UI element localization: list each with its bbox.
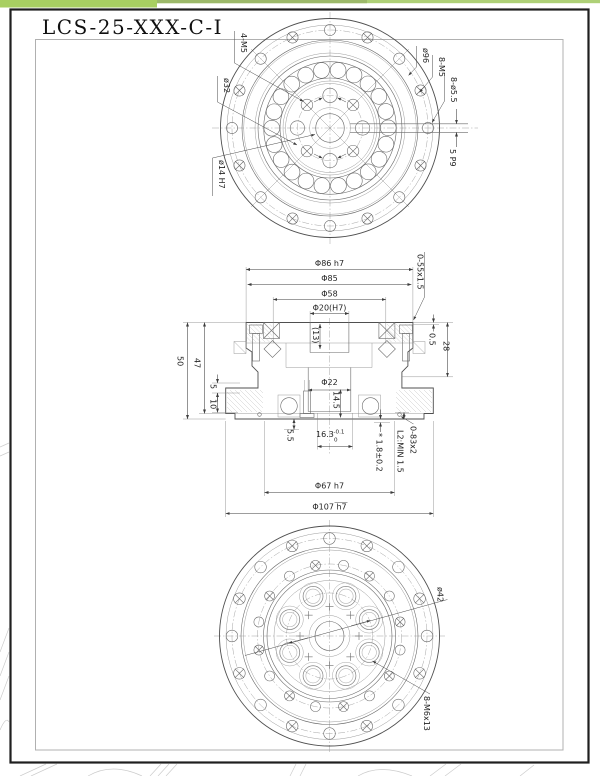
label-dia42: ø42	[436, 587, 445, 602]
dim-h145: 14.5	[332, 391, 341, 409]
dim-dia20: Φ20(H7)	[313, 304, 347, 313]
dim-h28: 28	[442, 341, 451, 351]
label-8-m5: 8-M5	[437, 57, 446, 77]
dim-depth13: (13)	[311, 327, 320, 343]
dim-l2: L2:MIN 1.5	[396, 430, 405, 473]
dim-dia85: Φ85	[321, 274, 337, 283]
dim-dia22: Φ22	[321, 378, 337, 387]
dim-oring-top: 0-55x1.5	[416, 254, 425, 290]
dim-h55: 5.5	[286, 429, 295, 442]
screenshot-root: LCS-25-XXX-C-I 5 P9	[0, 0, 600, 776]
label-8-d55: 8-ø5.5	[449, 77, 458, 103]
dim-h47: 47	[193, 358, 202, 368]
dim-dia107: Φ107 h7	[312, 503, 346, 512]
dim-h5: 5	[209, 384, 218, 389]
dim-gap05: 0.5	[428, 333, 437, 346]
label-8-m6x13: 8-M6x13	[422, 696, 431, 731]
dim-dia67: Φ67 h7	[315, 482, 344, 491]
dim-dia58: Φ58	[321, 290, 337, 299]
drawing-title: LCS-25-XXX-C-I	[42, 15, 223, 39]
dim-dia86: Φ86 h7	[315, 259, 344, 268]
engineering-drawing: LCS-25-XXX-C-I 5 P9	[0, 0, 600, 776]
dim-keyway: 5 P9	[448, 149, 457, 167]
dim-h50: 50	[176, 356, 185, 366]
label-dia96: ø96	[421, 48, 430, 63]
dim-w163: 16.3	[316, 430, 334, 439]
dim-gap18: * 1.8±0.2	[375, 433, 384, 472]
dim-w163-sup: -0.1	[334, 430, 345, 436]
label-dia32: ø32	[222, 78, 231, 93]
dim-oring-bot: 0-83x2	[409, 426, 418, 454]
dim-w163-sub: 0	[334, 438, 338, 444]
dim-h10: 10	[209, 399, 218, 409]
label-dia14-h7: ø14 H7	[217, 160, 226, 189]
top-accent-bar	[0, 0, 600, 8]
label-4-m5: 4-M5	[239, 33, 248, 53]
